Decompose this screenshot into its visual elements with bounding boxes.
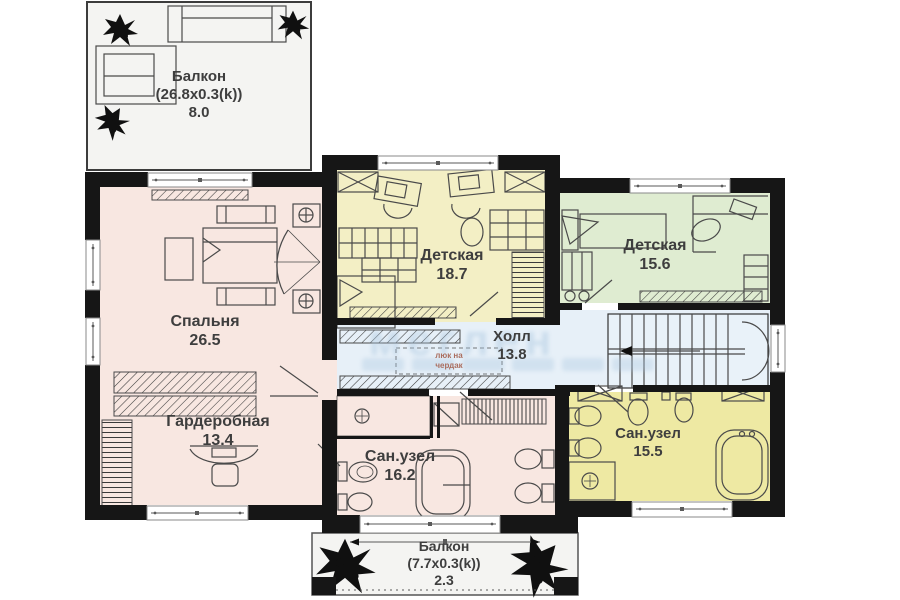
room-dims: (7.7x0.3(k)) <box>330 555 558 572</box>
window <box>360 516 500 533</box>
room-area: 26.5 <box>105 331 305 350</box>
floor-plan: меглен Балкон (26.8x0.3(k)) 8.0 Спальня … <box>0 0 900 600</box>
room-name: Сан.узел <box>310 447 490 466</box>
window <box>632 502 732 517</box>
window <box>147 506 248 520</box>
room-label-wardrobe: Гардеробная 13.4 <box>118 412 318 450</box>
hall-cabinet <box>340 376 510 389</box>
room-label-bedroom: Спальня 26.5 <box>105 312 305 350</box>
room-area: 18.7 <box>352 265 552 284</box>
room-label-balcony-top: Балкон (26.8x0.3(k)) 8.0 <box>97 68 301 122</box>
window <box>630 179 730 193</box>
closet-rack <box>114 372 256 393</box>
room-area: 8.0 <box>97 104 301 122</box>
room-area: 13.4 <box>118 431 318 450</box>
room-name: Холл <box>432 328 592 346</box>
room-area: 15.6 <box>555 255 755 274</box>
window <box>86 240 100 290</box>
staircase <box>608 314 769 388</box>
room-name: Гардеробная <box>118 412 318 431</box>
room-area: 2.3 <box>330 572 558 589</box>
room-name: Спальня <box>105 312 305 331</box>
room-label-balcony-bottom: Балкон (7.7x0.3(k)) 2.3 <box>330 538 558 588</box>
window <box>378 156 498 170</box>
towel-radiator <box>462 399 546 424</box>
window <box>771 325 785 372</box>
room-label-bath1: Сан.узел 16.2 <box>310 447 490 485</box>
bedroom-door-gap <box>322 360 337 400</box>
radiator <box>350 307 456 318</box>
room-name: Сан.узел <box>558 425 738 443</box>
room-name: Детская <box>352 246 552 265</box>
room-area: 16.2 <box>310 466 490 485</box>
room-label-kids2: Детская 15.6 <box>555 236 755 274</box>
window <box>148 173 252 187</box>
radiator <box>640 291 762 302</box>
room-dims: (26.8x0.3(k)) <box>97 86 301 104</box>
room-name: Балкон <box>97 68 301 86</box>
attic-hatch-label: люк на чердак <box>398 351 500 372</box>
room-label-bath2: Сан.узел 15.5 <box>558 425 738 461</box>
radiator <box>152 190 248 200</box>
room-name: Балкон <box>330 538 558 555</box>
window <box>86 318 100 365</box>
room-name: Детская <box>555 236 755 255</box>
room-label-kids1: Детская 18.7 <box>352 246 552 284</box>
room-area: 15.5 <box>558 443 738 461</box>
